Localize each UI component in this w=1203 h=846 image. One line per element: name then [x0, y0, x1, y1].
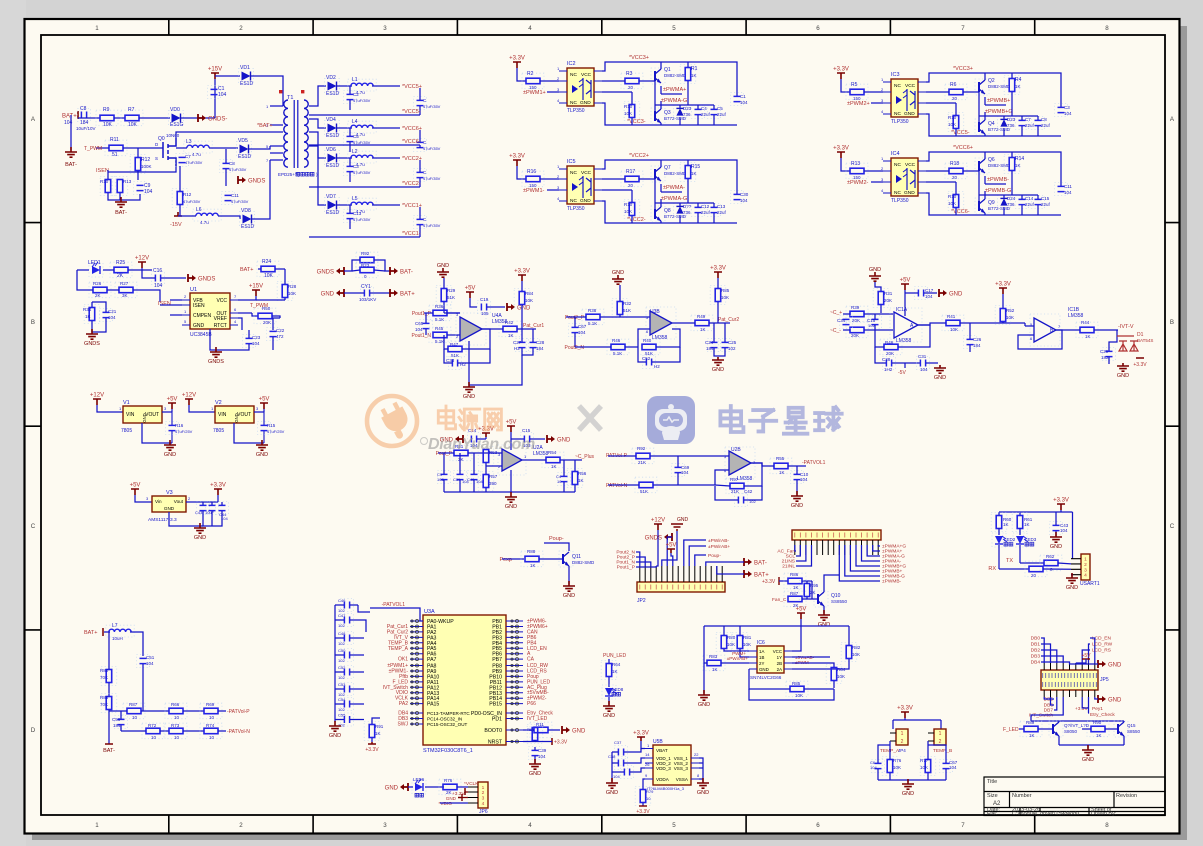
- svg-text:R76: R76: [444, 778, 453, 783]
- svg-text:390: 390: [489, 481, 497, 486]
- svg-text:B: B: [31, 319, 35, 326]
- svg-text:10K: 10K: [103, 122, 113, 128]
- svg-text:ES1D: ES1D: [326, 210, 339, 216]
- svg-text:R55: R55: [776, 456, 785, 461]
- svg-text:5: 5: [672, 822, 676, 829]
- svg-text:5.1K: 5.1K: [435, 339, 444, 344]
- svg-text:3: 3: [1084, 567, 1087, 573]
- svg-text:ES1D: ES1D: [238, 154, 251, 160]
- svg-text:4.7u: 4.7u: [200, 220, 209, 225]
- svg-text:C54: C54: [338, 697, 346, 702]
- svg-text:104: 104: [415, 327, 423, 332]
- svg-text:*VCC2-: *VCC2-: [627, 217, 646, 223]
- svg-text:Q?/IVT_L?D: Q?/IVT_L?D: [1064, 723, 1090, 728]
- svg-text:±PWMB-G: ±PWMB-G: [985, 188, 1011, 194]
- svg-text:20: 20: [628, 85, 634, 90]
- svg-text:736: 736: [1007, 123, 1015, 128]
- svg-text:GND: GND: [1108, 663, 1122, 669]
- svg-text:DB3: DB3: [1031, 654, 1041, 660]
- svg-text:GND: GND: [1117, 373, 1129, 379]
- svg-text:LCD_RS: LCD_RS: [1092, 648, 1111, 654]
- svg-text:±PWirAB+: ±PWirAB+: [708, 544, 730, 550]
- svg-text:472: 472: [276, 334, 284, 339]
- svg-text:VDDA: VDDA: [656, 777, 670, 782]
- svg-text:+5V: +5V: [900, 278, 911, 284]
- svg-text:C4: C4: [701, 106, 707, 111]
- svg-text:L3: L3: [186, 139, 192, 145]
- svg-text:+3.3V: +3.3V: [554, 740, 568, 746]
- svg-text:GND: GND: [164, 506, 175, 511]
- svg-text:R80: R80: [727, 635, 736, 640]
- svg-text:103/1KV: 103/1KV: [359, 297, 376, 302]
- svg-text:+3.3V: +3.3V: [833, 146, 849, 152]
- svg-text:R3: R3: [626, 71, 633, 77]
- svg-text:TEMP_A: TEMP_A: [388, 646, 409, 652]
- svg-text:GND: GND: [606, 790, 618, 796]
- svg-text:104: 104: [108, 315, 116, 320]
- svg-text:Pat_Cur2: Pat_Cur2: [718, 317, 739, 323]
- svg-text:UC3845B: UC3845B: [190, 332, 212, 338]
- svg-text:GND: GND: [902, 791, 914, 797]
- svg-text:C52: C52: [338, 665, 346, 670]
- svg-text:10: 10: [209, 715, 215, 720]
- svg-text:+5V: +5V: [796, 607, 807, 613]
- svg-text:104: 104: [144, 189, 153, 195]
- svg-text:10: 10: [174, 715, 180, 720]
- svg-text:Pout1_P: Pout1_P: [617, 565, 635, 571]
- svg-text:GNDS: GNDS: [198, 277, 215, 283]
- svg-text:104: 104: [740, 198, 748, 203]
- svg-text:*VCC6-: *VCC6-: [402, 139, 421, 145]
- svg-text:VD8: VD8: [241, 208, 251, 214]
- svg-text:NC: NC: [570, 170, 577, 176]
- svg-text:GND: GND: [1050, 544, 1062, 550]
- svg-text:R62: R62: [1046, 554, 1055, 559]
- svg-text:Pout2_N: Pout2_N: [565, 345, 585, 351]
- svg-text:VDD_3: VDD_3: [656, 766, 671, 771]
- svg-text:20K: 20K: [851, 333, 859, 338]
- svg-text:V1: V1: [123, 400, 130, 406]
- svg-text:ES1D: ES1D: [326, 163, 339, 169]
- svg-text:R10: R10: [624, 104, 633, 109]
- svg-text:+3.3V: +3.3V: [762, 579, 776, 585]
- svg-text:BAT+: BAT+: [62, 114, 77, 120]
- svg-text:C8: C8: [229, 161, 235, 166]
- svg-text:10: 10: [174, 735, 180, 740]
- svg-text:SS8550: SS8550: [831, 599, 848, 604]
- svg-text:+3.3V: +3.3V: [210, 483, 226, 489]
- svg-text:10K: 10K: [525, 298, 533, 303]
- svg-text:CA: CA: [527, 657, 535, 663]
- svg-text:182: 182: [1101, 355, 1109, 360]
- svg-text:±PWM2+: ±PWM2+: [847, 101, 870, 107]
- svg-text:R38: R38: [588, 308, 597, 313]
- svg-text:VIN: VIN: [126, 412, 135, 418]
- svg-text:LED3: LED3: [1025, 537, 1037, 542]
- svg-text:*VCC1+: *VCC1+: [402, 203, 422, 209]
- svg-text:R42: R42: [505, 320, 514, 325]
- svg-text:104: 104: [578, 330, 586, 335]
- svg-text:1K: 1K: [375, 731, 381, 736]
- svg-text:ES1D: ES1D: [241, 224, 254, 230]
- svg-text:R88: R88: [527, 549, 536, 554]
- svg-text:47uF/35V: 47uF/35V: [423, 146, 441, 151]
- svg-text:C65: C65: [415, 321, 424, 326]
- svg-text:102: 102: [338, 707, 345, 712]
- svg-text:R12: R12: [183, 192, 192, 197]
- svg-text:C7: C7: [1025, 117, 1031, 122]
- svg-text:LM358: LM358: [1068, 313, 1084, 319]
- svg-text:4: 4: [1084, 573, 1087, 579]
- svg-text:+12V: +12V: [651, 518, 665, 524]
- svg-text:P66: P66: [527, 701, 536, 707]
- svg-text:+3.3V: +3.3V: [365, 747, 379, 753]
- svg-text:R97: R97: [730, 477, 739, 482]
- svg-text:+12V: +12V: [90, 393, 104, 399]
- svg-text:CMPEN: CMPEN: [193, 313, 211, 319]
- svg-text:PC14-OSC32_IN: PC14-OSC32_IN: [427, 717, 462, 722]
- svg-text:GND: GND: [563, 593, 575, 599]
- svg-text:±PWMB+G: ±PWMB+G: [985, 109, 1013, 115]
- svg-text:GND: GND: [446, 796, 457, 801]
- svg-text:47uF/25V: 47uF/25V: [267, 429, 285, 434]
- svg-text:2K: 2K: [95, 293, 101, 298]
- svg-text:GND: GND: [557, 438, 571, 444]
- svg-text:ISEN: ISEN: [96, 168, 109, 174]
- svg-text:GND: GND: [949, 292, 963, 298]
- svg-text:51K: 51K: [623, 308, 631, 313]
- svg-text:+5V: +5V: [1081, 653, 1091, 659]
- svg-text:IC5: IC5: [567, 159, 576, 165]
- svg-text:R86: R86: [790, 572, 799, 577]
- svg-text:47uF/35V: 47uF/35V: [423, 176, 441, 181]
- svg-text:1K: 1K: [530, 563, 536, 568]
- svg-text:3: 3: [482, 796, 485, 802]
- svg-text:R25: R25: [116, 260, 125, 266]
- svg-text:±PWM1-: ±PWM1-: [523, 188, 545, 194]
- svg-text:R7: R7: [128, 107, 135, 113]
- svg-text:10uH: 10uH: [112, 636, 123, 641]
- svg-text:R45: R45: [435, 326, 444, 331]
- svg-text:PC15-OSC32_OUT: PC15-OSC32_OUT: [427, 722, 468, 727]
- svg-text:R14: R14: [1015, 156, 1024, 162]
- svg-text:VD5: VD5: [238, 138, 248, 144]
- svg-text:C39: C39: [538, 748, 547, 753]
- svg-text:LED1: LED1: [88, 260, 101, 266]
- svg-text:Fan_C: Fan_C: [772, 597, 787, 603]
- svg-text:+5V: +5V: [167, 397, 178, 403]
- svg-text:NC: NC: [894, 83, 901, 89]
- svg-text:ES1D: ES1D: [326, 91, 339, 97]
- svg-text:TLP350: TLP350: [567, 108, 585, 114]
- svg-text:±PWMA+: ±PWMA+: [663, 87, 686, 93]
- svg-text:R1: R1: [691, 66, 698, 72]
- svg-text:+3.3V: +3.3V: [710, 266, 726, 272]
- svg-text:1A: 1A: [759, 649, 764, 654]
- svg-text:1: 1: [939, 731, 942, 737]
- svg-text:10K: 10K: [727, 642, 735, 647]
- svg-text:20K: 20K: [263, 320, 271, 325]
- svg-text:+3.3V: +3.3V: [995, 282, 1011, 288]
- svg-text:DB4: DB4: [1031, 660, 1041, 666]
- svg-text:R13: R13: [123, 179, 132, 184]
- svg-text:-IVT-V: -IVT-V: [1118, 324, 1134, 330]
- svg-text:D882-SMD: D882-SMD: [664, 171, 687, 176]
- svg-text:2: 2: [239, 822, 243, 829]
- svg-text:C19: C19: [480, 297, 489, 302]
- svg-text:GND: GND: [580, 100, 591, 106]
- svg-text:GND: GND: [791, 503, 803, 509]
- svg-text:+12V: +12V: [135, 256, 149, 262]
- svg-text:±PWirAB-: ±PWirAB-: [708, 538, 729, 544]
- svg-text:U5B: U5B: [653, 739, 663, 745]
- svg-text:C5: C5: [717, 106, 723, 111]
- svg-text:BAT+: BAT+: [240, 267, 254, 273]
- svg-text:R41: R41: [947, 314, 956, 319]
- svg-text:GND: GND: [904, 190, 915, 196]
- svg-text:C23: C23: [252, 335, 261, 340]
- svg-text:VSSA: VSSA: [676, 777, 689, 782]
- svg-text:51K: 51K: [640, 489, 648, 494]
- svg-text:104: 104: [681, 470, 689, 475]
- svg-text:1Y: 1Y: [777, 655, 782, 660]
- svg-text:2K: 2K: [446, 790, 452, 795]
- svg-text:R27: R27: [120, 281, 129, 286]
- svg-text:GND: GND: [904, 111, 915, 117]
- svg-text:ES1D: ES1D: [326, 133, 339, 139]
- svg-text:C52: C52: [642, 356, 651, 361]
- svg-text:104: 104: [1060, 528, 1068, 533]
- svg-text:R24: R24: [262, 259, 271, 265]
- svg-text:47uF/35V: 47uF/35V: [229, 167, 247, 172]
- svg-text:*VCC2+: *VCC2+: [629, 153, 649, 159]
- svg-text:GND: GND: [677, 517, 689, 523]
- svg-text:C48: C48: [338, 631, 346, 636]
- svg-text:1K: 1K: [551, 464, 557, 469]
- svg-text:S: S: [155, 156, 158, 161]
- svg-text:47uF/35V: 47uF/35V: [353, 140, 371, 145]
- svg-text:2A: 2A: [777, 667, 782, 672]
- svg-text:R15: R15: [691, 164, 700, 170]
- svg-text:10uF: 10uF: [205, 510, 215, 515]
- svg-text:R46: R46: [885, 340, 894, 345]
- svg-text:R92: R92: [361, 251, 370, 256]
- svg-text:14: 14: [645, 752, 650, 757]
- svg-text:SN74LVC2G66: SN74LVC2G66: [750, 675, 782, 680]
- svg-text:*VCC1-: *VCC1-: [402, 231, 421, 237]
- svg-text:7: 7: [961, 822, 965, 829]
- svg-text:Size: Size: [987, 793, 998, 799]
- svg-text:C50: C50: [338, 648, 346, 653]
- svg-text:TLP350: TLP350: [567, 206, 585, 212]
- svg-text:1K: 1K: [508, 333, 514, 338]
- svg-text:20: 20: [628, 183, 634, 188]
- svg-text:102: 102: [728, 346, 736, 351]
- svg-text:R64: R64: [612, 662, 621, 667]
- svg-text:JP6: JP6: [479, 809, 488, 815]
- svg-text:Pout1_N: Pout1_N: [412, 333, 432, 339]
- svg-text:R85: R85: [792, 681, 801, 686]
- svg-text:NRST: NRST: [488, 740, 503, 746]
- svg-text:VCC: VCC: [216, 298, 227, 304]
- svg-text:*VCC2-: *VCC2-: [402, 181, 421, 187]
- svg-text:10K: 10K: [893, 765, 901, 770]
- svg-text:R44: R44: [1081, 320, 1090, 325]
- svg-text:10K: 10K: [1006, 315, 1014, 320]
- svg-text:D882-SMD: D882-SMD: [664, 73, 687, 78]
- svg-text:C53: C53: [338, 682, 346, 687]
- svg-text:GND: GND: [759, 667, 769, 672]
- svg-text:BAT-: BAT-: [103, 748, 115, 754]
- svg-text:R36: R36: [435, 304, 444, 309]
- svg-text:10K: 10K: [837, 674, 845, 679]
- svg-text:C27: C27: [513, 340, 522, 345]
- svg-text:GND: GND: [164, 452, 176, 458]
- svg-text:C37: C37: [614, 740, 622, 745]
- svg-text:VD2: VD2: [326, 75, 336, 81]
- svg-text:3: 3: [383, 822, 387, 829]
- svg-text:2: 2: [482, 790, 485, 796]
- svg-text:C25: C25: [728, 340, 737, 345]
- svg-text:BAT-: BAT-: [400, 270, 413, 276]
- svg-text:22uf: 22uf: [1025, 202, 1035, 207]
- svg-text:+5V: +5V: [465, 286, 476, 292]
- svg-text:104: 104: [949, 765, 957, 770]
- svg-text:+3.3V: +3.3V: [509, 154, 525, 160]
- svg-text:R28: R28: [288, 284, 297, 289]
- svg-text:C13: C13: [717, 204, 726, 209]
- svg-text:V3: V3: [166, 490, 173, 496]
- svg-text:C15: C15: [522, 428, 531, 433]
- svg-text:GND: GND: [712, 367, 724, 373]
- svg-text:C16: C16: [153, 268, 162, 274]
- svg-text:-15V: -15V: [170, 222, 182, 228]
- svg-text:R89: R89: [1026, 720, 1035, 725]
- svg-text:VIN: VIN: [218, 412, 227, 418]
- svg-text:C11: C11: [1064, 184, 1072, 189]
- svg-text:104: 104: [476, 479, 483, 484]
- svg-text:21INL: 21INL: [782, 564, 795, 570]
- svg-text:104: 104: [1064, 111, 1072, 116]
- svg-text:10: 10: [151, 735, 157, 740]
- svg-text:±PWMA-G: ±PWMA-G: [661, 196, 687, 202]
- svg-text:F_LED: F_LED: [1003, 727, 1019, 733]
- svg-text:R79: R79: [646, 789, 654, 794]
- svg-text:R32: R32: [623, 301, 632, 306]
- svg-text:10: 10: [557, 479, 562, 484]
- svg-text:GND: GND: [194, 535, 206, 541]
- svg-text:L4: L4: [352, 119, 358, 125]
- svg-text:2: 2: [939, 739, 942, 745]
- svg-text:R17: R17: [626, 169, 635, 175]
- svg-text:VD7: VD7: [326, 194, 336, 200]
- svg-text:R4: R4: [1015, 77, 1022, 83]
- svg-text:IC2: IC2: [567, 61, 576, 67]
- svg-text:C5: C5: [353, 134, 359, 139]
- svg-text:TLP350: TLP350: [891, 198, 909, 204]
- svg-text:10K: 10K: [624, 111, 632, 116]
- svg-text:8: 8: [1105, 822, 1109, 829]
- svg-text:+3.3V: +3.3V: [833, 67, 849, 73]
- svg-text:LM358: LM358: [737, 476, 753, 482]
- svg-text:+5V: +5V: [506, 420, 517, 426]
- svg-text:D882-SMD: D882-SMD: [572, 560, 595, 565]
- svg-text:+5V: +5V: [259, 397, 270, 403]
- svg-text:R10: R10: [948, 194, 957, 199]
- svg-text:GND: GND: [385, 786, 399, 792]
- svg-text:4: 4: [482, 801, 485, 807]
- svg-text:C67: C67: [578, 324, 587, 329]
- svg-text:+3.3V: +3.3V: [897, 706, 913, 712]
- svg-text:R15: R15: [267, 423, 276, 428]
- svg-text:1K: 1K: [691, 171, 697, 176]
- svg-text:1K: 1K: [1024, 522, 1030, 527]
- svg-text:3: 3: [383, 25, 387, 32]
- svg-text:-PATVOL1: -PATVOL1: [382, 602, 406, 608]
- svg-text:PUN_LED: PUN_LED: [603, 653, 626, 659]
- svg-text:R26: R26: [93, 281, 102, 286]
- svg-text:C26: C26: [973, 337, 982, 342]
- svg-text:102: 102: [338, 623, 345, 628]
- svg-text:±PWM2-: ±PWM2-: [847, 180, 869, 186]
- svg-text:R18: R18: [950, 161, 959, 167]
- svg-text:B: B: [1170, 319, 1174, 326]
- svg-text:R10: R10: [100, 179, 109, 184]
- svg-text:BAT+: BAT+: [754, 573, 769, 579]
- svg-text:VREF: VREF: [214, 316, 227, 322]
- svg-text:736: 736: [1007, 202, 1015, 207]
- svg-text:U3A: U3A: [424, 609, 435, 615]
- svg-text:C: C: [1170, 523, 1175, 530]
- svg-text:1K: 1K: [578, 478, 584, 483]
- svg-text:+3.3V: +3.3V: [1053, 498, 1069, 504]
- svg-text:104: 104: [538, 754, 546, 759]
- svg-text:ISEN: ISEN: [193, 303, 205, 309]
- svg-text:BAT-: BAT-: [115, 210, 127, 216]
- svg-text:ES1G: ES1G: [170, 122, 183, 128]
- svg-text:Q15: Q15: [1127, 723, 1136, 728]
- svg-text:47uF/35V: 47uF/35V: [185, 160, 203, 165]
- svg-text:GND: GND: [698, 702, 710, 708]
- svg-text:C17: C17: [925, 288, 934, 293]
- svg-text:*VCC3+: *VCC3+: [629, 55, 649, 61]
- svg-text:10K: 10K: [948, 122, 956, 127]
- svg-text:*VCC5+: *VCC5+: [402, 84, 422, 90]
- svg-text:DB1: DB1: [1031, 642, 1041, 648]
- svg-text:CY1: CY1: [361, 284, 371, 290]
- svg-text:Vin: Vin: [155, 499, 162, 504]
- svg-text:L6: L6: [196, 207, 202, 213]
- svg-text:NC: NC: [570, 198, 577, 204]
- svg-text:GND: GND: [321, 292, 335, 298]
- svg-text:+3.3V: +3.3V: [1133, 362, 1147, 368]
- svg-text:3K: 3K: [122, 293, 128, 298]
- svg-text:1: 1: [95, 25, 99, 32]
- svg-text:*VCC5-: *VCC5-: [402, 109, 421, 115]
- svg-text:±PWMA-: ±PWMA-: [663, 185, 685, 191]
- svg-text:1K: 1K: [1029, 733, 1035, 738]
- svg-text:1K: 1K: [612, 669, 618, 674]
- svg-text:Poup-: Poup-: [549, 536, 564, 542]
- svg-text:22uf: 22uf: [701, 112, 711, 117]
- svg-text:184: 184: [113, 723, 121, 728]
- svg-text:S8050: S8050: [1064, 729, 1078, 734]
- svg-text:D: D: [1170, 727, 1175, 734]
- svg-text:IC4: IC4: [891, 151, 900, 157]
- svg-text:R47: R47: [450, 342, 459, 347]
- svg-text:GND: GND: [818, 622, 830, 628]
- svg-text:102: 102: [338, 641, 345, 646]
